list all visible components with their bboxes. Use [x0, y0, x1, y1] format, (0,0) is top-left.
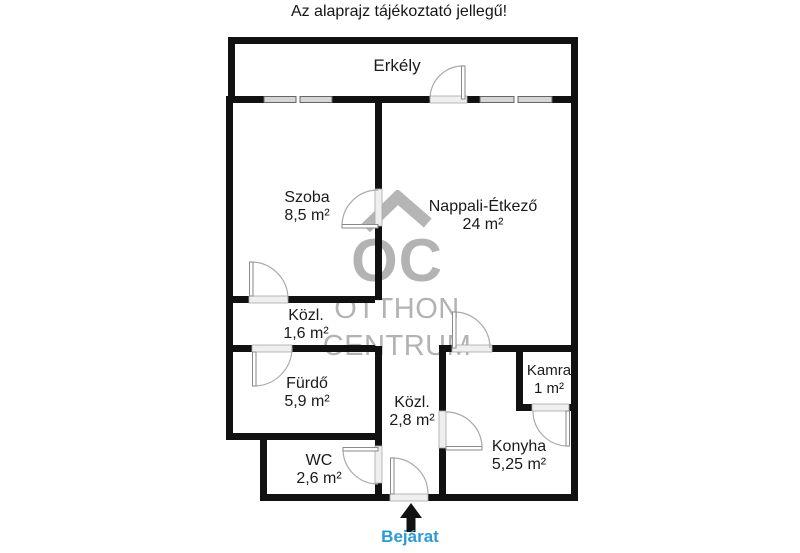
door-opening [375, 189, 382, 226]
room-area: 24 m² [429, 216, 538, 234]
wall [228, 96, 264, 103]
wall [428, 494, 578, 501]
wall [571, 37, 578, 103]
door-leaf [446, 447, 482, 451]
window [264, 97, 296, 103]
room-area: 2,8 m² [389, 412, 434, 430]
walls [226, 37, 578, 501]
room-name: WC [296, 452, 341, 470]
wall [516, 352, 523, 404]
room-name: Szoba [284, 189, 329, 207]
room-label-kozlekedo-2: Közl. 2,8 m² [389, 394, 434, 430]
window [300, 97, 332, 103]
door-opening [249, 296, 288, 303]
door-opening [252, 345, 292, 352]
room-label-nappali-etkezo: Nappali-Étkező 24 m² [429, 198, 538, 234]
wall [492, 345, 578, 352]
door-swing-arc [454, 312, 490, 348]
door-leaf [453, 312, 457, 348]
door-opening [532, 404, 569, 411]
room-area: 2,6 m² [296, 470, 341, 488]
door-swing-arc [251, 262, 288, 299]
wall [226, 433, 382, 440]
room-label-konyha: Konyha 5,25 m² [492, 438, 546, 474]
door-opening [375, 446, 382, 483]
window [518, 97, 552, 103]
room-name: Erkély [373, 57, 420, 75]
door-leaf [343, 448, 378, 452]
room-area: 5,9 m² [284, 393, 329, 411]
door-swing-arc [342, 190, 378, 226]
disclaimer-title: Az alaprajz tájékoztató jellegű! [291, 3, 507, 21]
wall [226, 296, 249, 303]
door-leaf [250, 262, 254, 296]
room-area: 1,6 m² [283, 325, 328, 343]
floorplan-page: Az alaprajz tájékoztató jellegű! OC OTTH… [0, 0, 800, 553]
wall [260, 494, 390, 501]
door-leaf [462, 66, 466, 99]
wall [439, 448, 446, 494]
room-name: Közl. [283, 307, 328, 325]
room-label-furdo: Fürdő 5,9 m² [284, 375, 329, 411]
room-label-kozlekedo-1: Közl. 1,6 m² [283, 307, 328, 343]
room-name: Kamra [527, 362, 571, 380]
entrance-label: Bejárat [381, 527, 439, 547]
room-name: Közl. [389, 394, 434, 412]
room-label-wc: WC 2,6 m² [296, 452, 341, 488]
door-leaf [566, 411, 570, 446]
room-name: Nappali-Étkező [429, 198, 538, 216]
door-leaf [253, 352, 257, 386]
room-area: 5,25 m² [492, 456, 546, 474]
wall [228, 37, 235, 103]
room-area: 8,5 m² [284, 207, 329, 225]
window [480, 97, 514, 103]
wall [467, 96, 480, 103]
door-swing-arc [430, 66, 463, 99]
wall [375, 346, 382, 446]
wall [516, 404, 532, 411]
door-swing-arc [446, 412, 482, 448]
wall [571, 96, 578, 501]
wall [260, 440, 267, 501]
wall [569, 404, 578, 411]
door-swing-arc [343, 449, 378, 484]
door-leaf [342, 225, 378, 229]
wall [288, 296, 375, 303]
floorplan-canvas [0, 0, 800, 553]
wall [375, 483, 382, 501]
room-label-szoba: Szoba 8,5 m² [284, 189, 329, 225]
room-area: 1 m² [527, 380, 571, 398]
door-swing-arc [392, 458, 428, 494]
door-opening [390, 494, 428, 501]
wall [375, 226, 382, 300]
wall [439, 345, 446, 411]
door-opening [439, 411, 446, 448]
room-label-erkely: Erkély [373, 57, 420, 75]
room-name: Fürdő [284, 375, 329, 393]
room-name: Konyha [492, 438, 546, 456]
room-label-kamra: Kamra 1 m² [527, 362, 571, 398]
wall [226, 345, 252, 352]
wall [228, 37, 578, 44]
wall [375, 96, 382, 189]
door-opening [452, 345, 492, 352]
door-leaf [391, 458, 395, 494]
wall [226, 96, 233, 440]
wall [292, 345, 375, 352]
